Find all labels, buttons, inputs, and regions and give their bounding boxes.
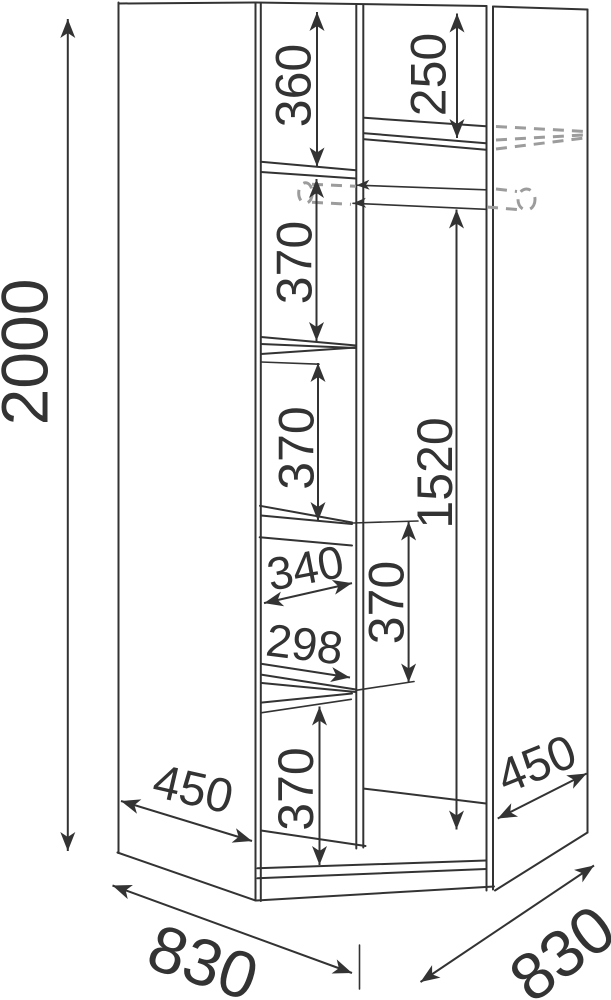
svg-text:360: 360 xyxy=(266,44,322,127)
svg-text:370: 370 xyxy=(268,747,324,830)
svg-text:370: 370 xyxy=(359,561,415,644)
svg-text:298: 298 xyxy=(263,614,346,675)
svg-text:250: 250 xyxy=(401,33,457,116)
svg-text:340: 340 xyxy=(263,535,348,601)
svg-text:830: 830 xyxy=(496,890,611,1000)
svg-text:2000: 2000 xyxy=(0,279,62,426)
svg-text:370: 370 xyxy=(269,406,325,489)
svg-text:450: 450 xyxy=(490,725,584,804)
svg-text:370: 370 xyxy=(267,221,323,304)
svg-text:1520: 1520 xyxy=(407,417,463,528)
svg-text:830: 830 xyxy=(139,909,267,1000)
